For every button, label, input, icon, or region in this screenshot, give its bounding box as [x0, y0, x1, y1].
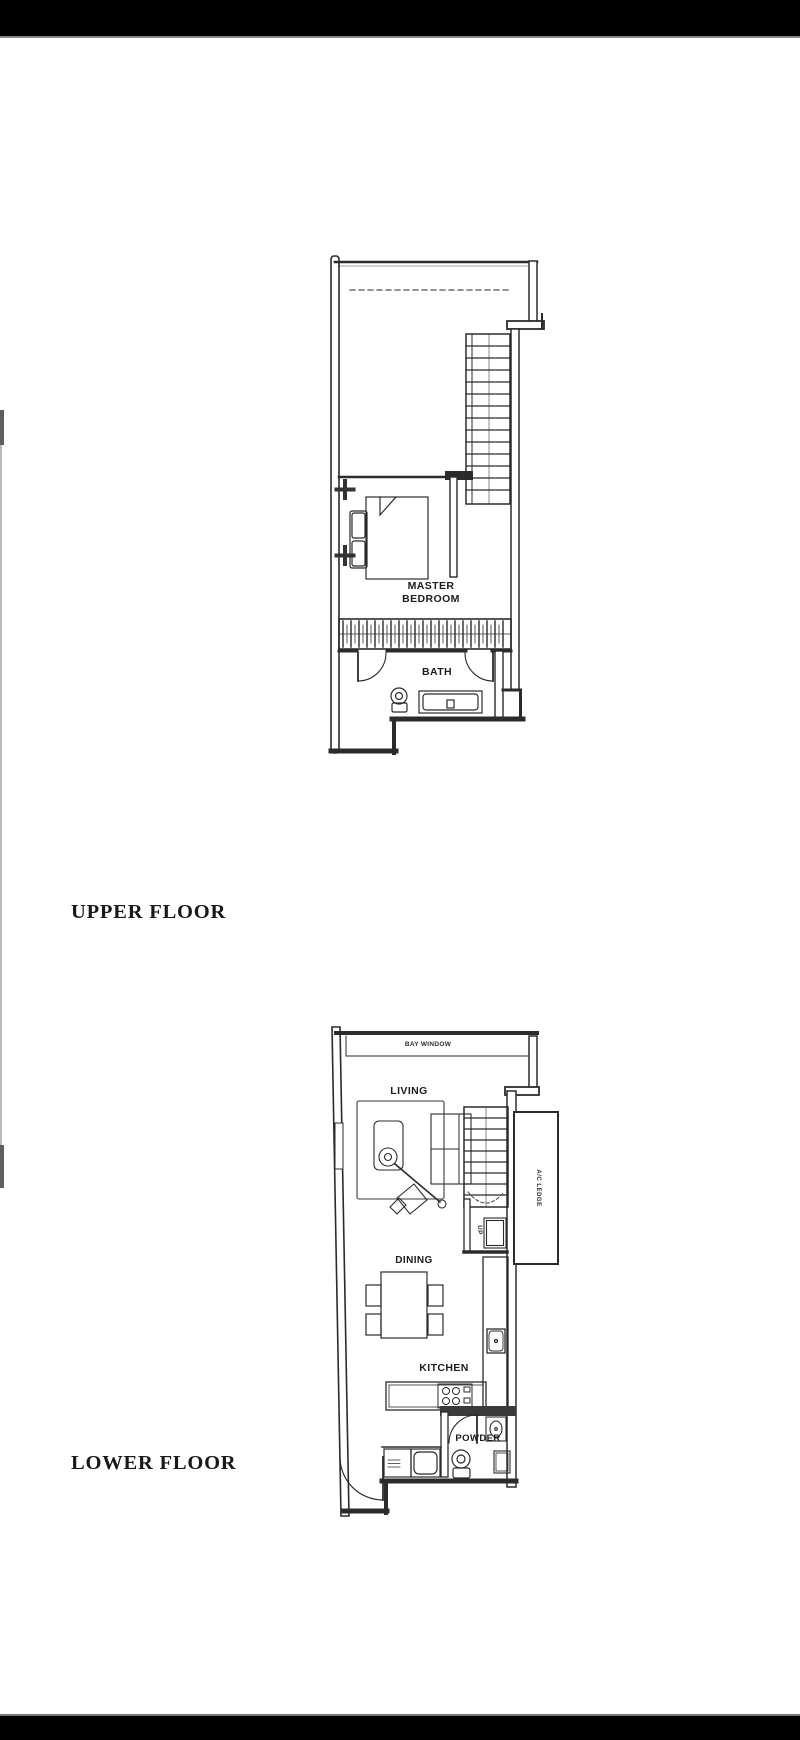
bay-window-label: BAY WINDOW: [405, 1041, 451, 1049]
lower-floor-section-label: LOWER FLOOR: [71, 1452, 236, 1475]
bathtub: [419, 691, 482, 713]
floor-plan-drawing: [0, 0, 800, 1740]
washing-machine: [411, 1449, 440, 1477]
lower-floor-plan: [332, 1027, 558, 1516]
dining-table: [366, 1272, 443, 1338]
shower-fixture-inner: [496, 1453, 508, 1471]
living-label: LIVING: [390, 1085, 427, 1098]
dining-label: DINING: [395, 1255, 432, 1268]
powder-wc: [452, 1450, 470, 1478]
living-furniture: [357, 1101, 471, 1214]
powder-label: POWDER: [455, 1433, 500, 1445]
stair-direction-label: UP: [475, 1225, 483, 1235]
kitchen-label: KITCHEN: [419, 1362, 468, 1375]
kitchen-counters: [386, 1257, 508, 1410]
upper-floor-section-label: UPPER FLOOR: [71, 901, 226, 924]
floor-plan-page: MASTER BEDROOM BATH UPPER FLOOR BAY WIND…: [0, 0, 800, 1740]
fridge: [484, 1218, 506, 1248]
sink: [487, 1329, 505, 1353]
cooktop: [438, 1384, 472, 1408]
bottom-letterbox-bar: [0, 1714, 800, 1740]
bath-label: BATH: [422, 666, 452, 679]
master-bedroom-label: MASTER BEDROOM: [399, 580, 463, 606]
wardrobe: [339, 619, 511, 649]
cabinet: [384, 1449, 411, 1477]
toilet: [391, 688, 407, 712]
bed: [350, 497, 428, 579]
ac-ledge-label: A/C LEDGE: [533, 1169, 541, 1206]
